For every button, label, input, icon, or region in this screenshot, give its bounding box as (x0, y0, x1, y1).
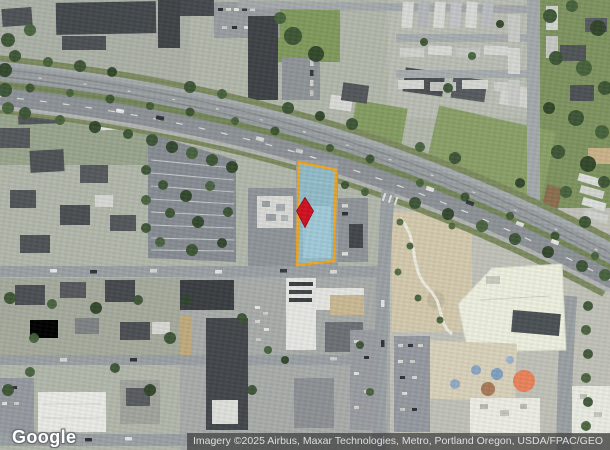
parking-strip-east (338, 198, 368, 262)
satellite-imagery[interactable] (0, 0, 610, 450)
attribution-text: Imagery ©2025 Airbus, Maxar Technologies… (193, 435, 603, 447)
commercial-west (248, 188, 300, 266)
map-viewport[interactable]: Google Imagery ©2025 Airbus, Maxar Techn… (0, 0, 610, 450)
google-watermark[interactable]: Google (12, 427, 76, 448)
attribution-bar: Imagery ©2025 Airbus, Maxar Technologies… (187, 433, 610, 450)
